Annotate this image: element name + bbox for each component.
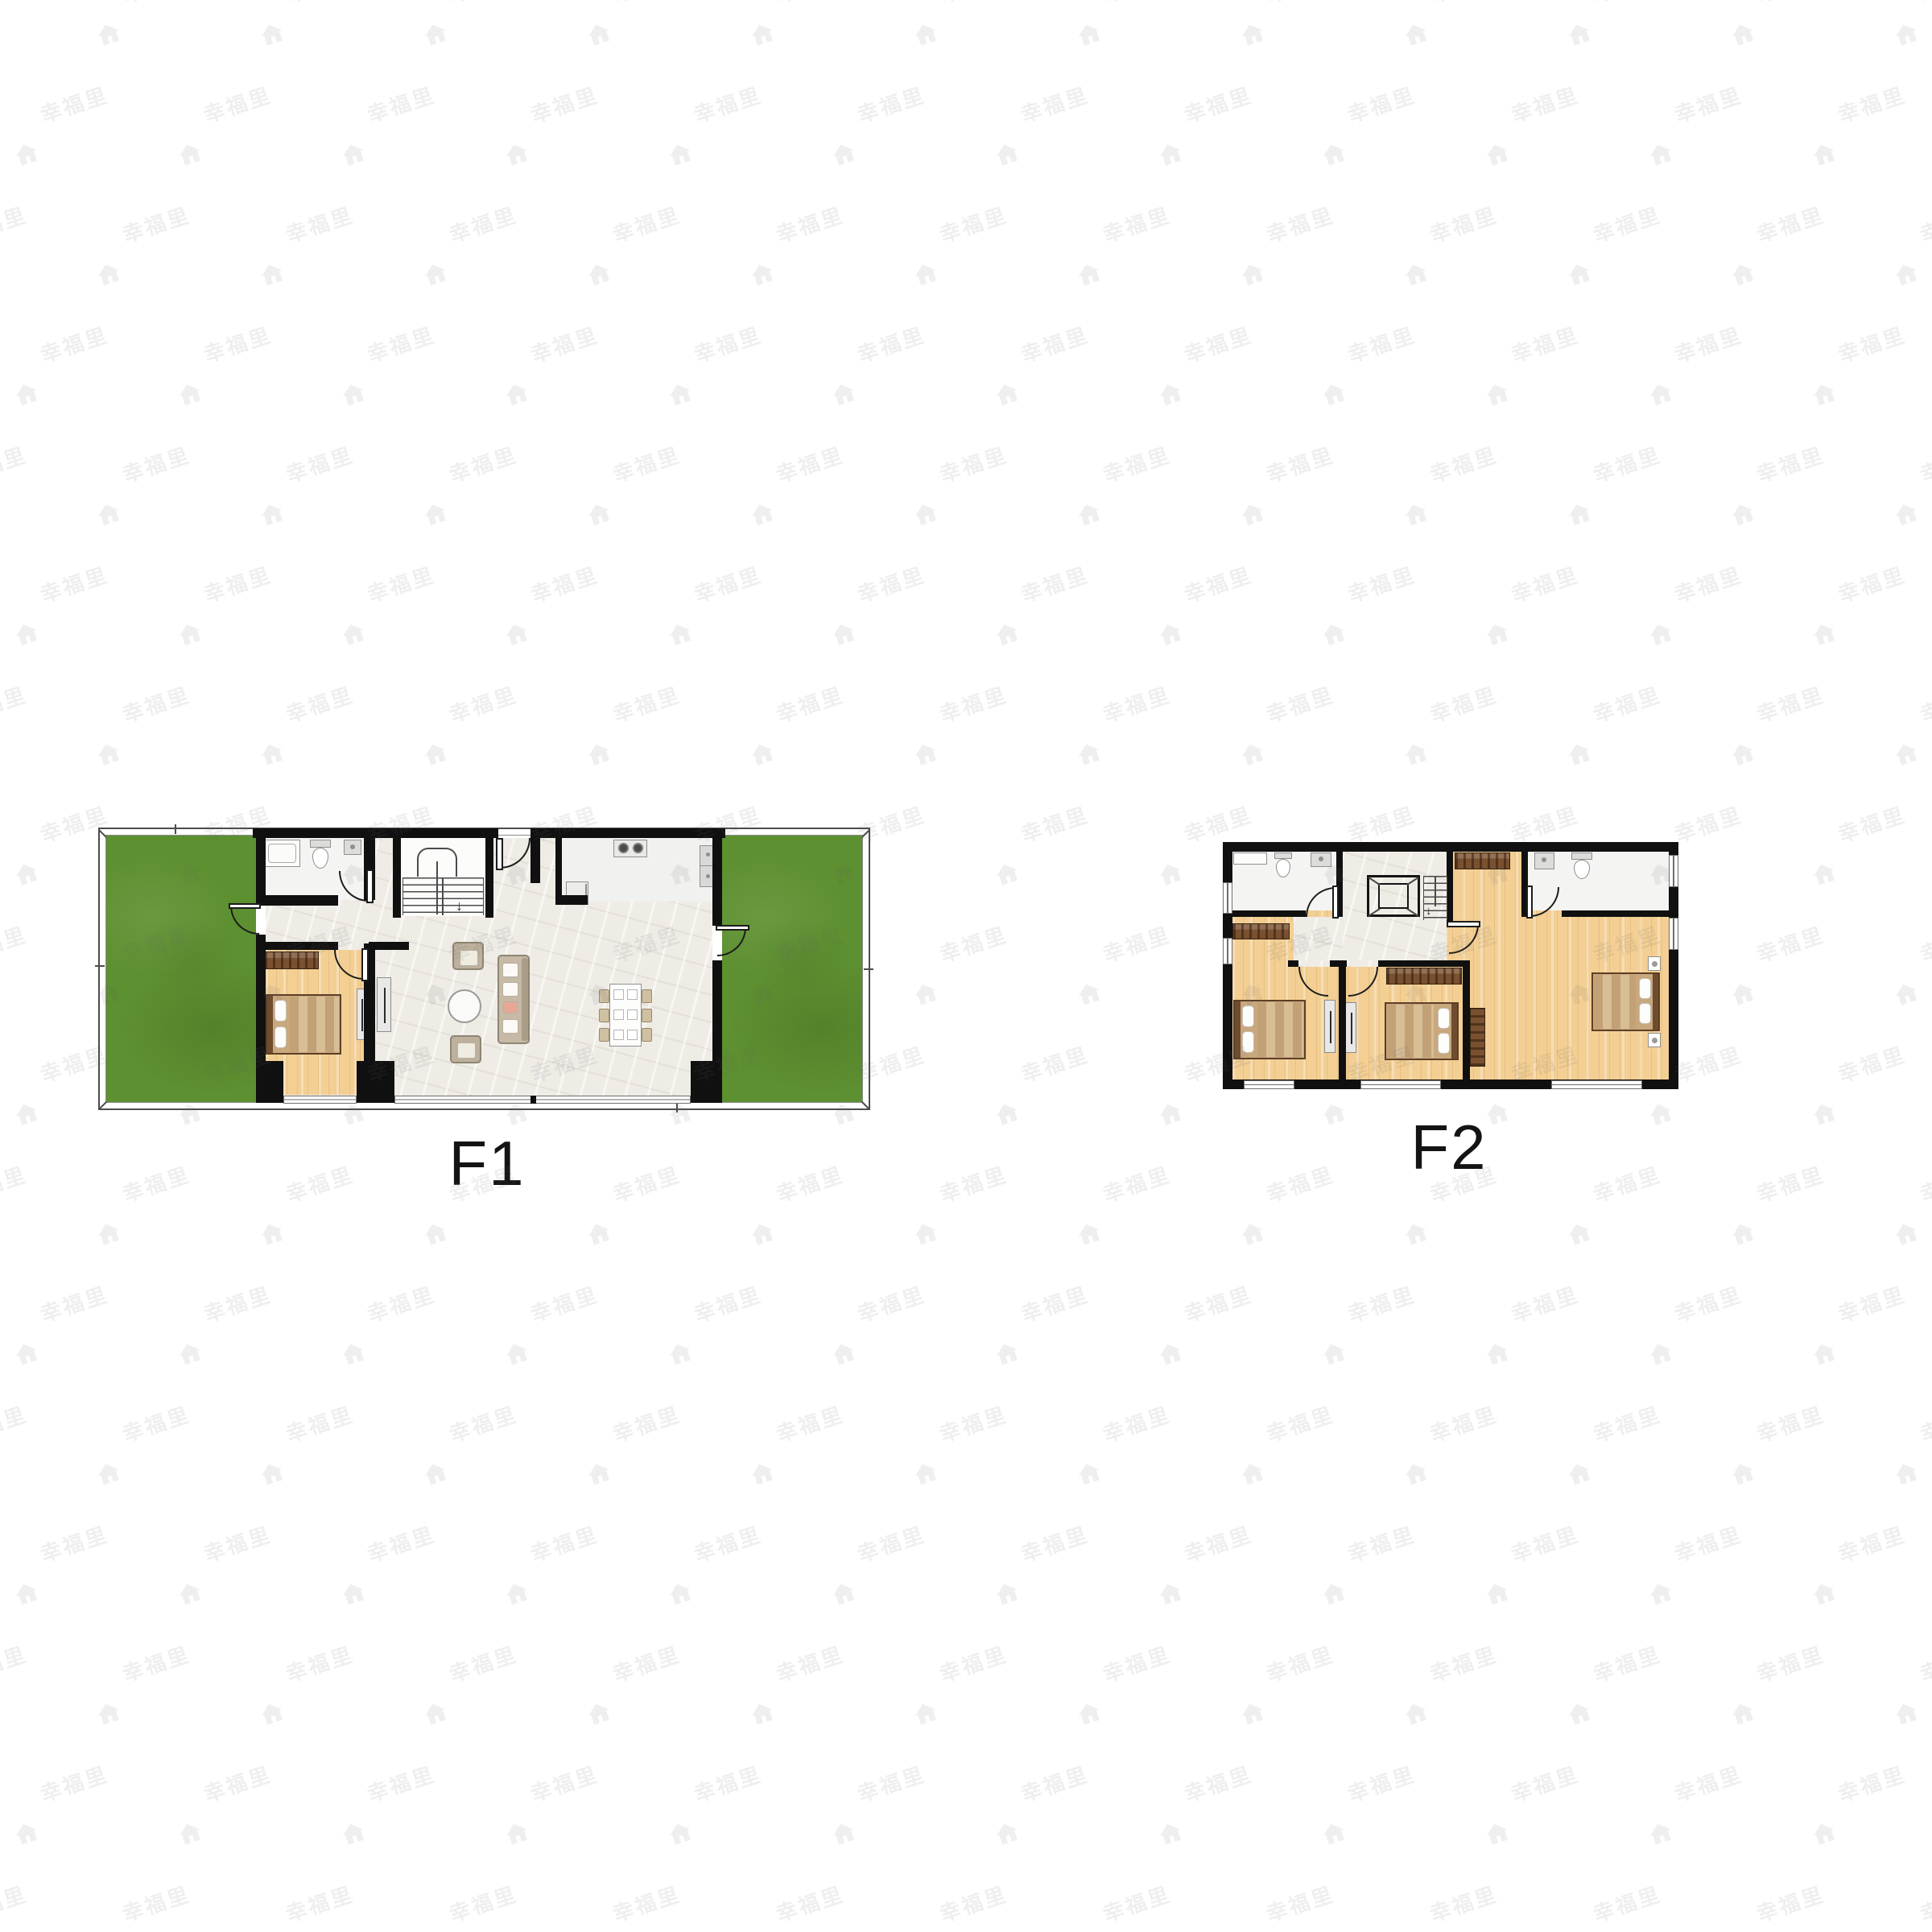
watermark-tile: 幸福里 [81,1394,221,1508]
pillow [1639,978,1651,999]
house-icon [828,378,860,411]
watermark-text: 幸福里 [1099,439,1174,489]
house-icon [1563,1218,1596,1250]
watermark-text: 幸福里 [772,199,848,249]
plate [613,989,624,1000]
watermark-text: 幸福里 [1099,1398,1174,1448]
watermark-tile: 幸福里 [0,315,139,428]
pillow [275,1026,287,1048]
house-icon [746,498,778,530]
watermark-text: 幸福里 [1752,1398,1828,1448]
tv-stand [1324,1000,1335,1053]
house-icon [256,498,288,530]
watermark-text: 幸福里 [1426,199,1501,249]
watermark-text: 幸福里 [772,1398,848,1448]
watermark-tile: 幸福里 [1470,555,1610,668]
watermark-tile: 幸福里 [163,1754,303,1868]
plate [627,1009,638,1020]
watermark-text: 幸福里 [1180,319,1256,369]
house-icon [910,258,942,291]
wall [1447,852,1453,924]
house-icon [1727,1458,1759,1490]
house-icon [1808,138,1840,171]
watermark-tile: 幸福里 [735,1154,875,1268]
tv-screen [1351,1013,1352,1044]
house-icon [1727,498,1759,530]
watermark-tile: 幸福里 [1797,1514,1932,1628]
house-icon [1318,618,1350,650]
watermark-text: 幸福里 [1262,1158,1338,1208]
watermark-tile: 幸福里 [1879,1394,1932,1508]
watermark-text: 幸福里 [1262,1638,1338,1688]
watermark-tile: 幸福里 [572,1874,712,1932]
sofa-pillow [502,982,518,997]
watermark-text: 幸福里 [526,1278,602,1328]
sofa-pillow [502,1019,518,1034]
house-icon [1154,1098,1187,1130]
watermark-text: 幸福里 [1180,799,1256,848]
house-icon [828,1338,860,1370]
house-icon [174,378,206,411]
watermark-tile: 幸福里 [1797,315,1932,428]
watermark-tile: 幸福里 [898,195,1038,308]
house-icon [1563,19,1596,51]
house-icon [1645,1818,1677,1850]
watermark-text: 幸福里 [1262,679,1338,729]
watermark-tile: 幸福里 [1389,1394,1529,1508]
door-gap [1298,960,1330,967]
pillow [275,1000,287,1022]
watermark-tile: 幸福里 [1797,1754,1932,1868]
watermark-tile: 幸福里 [163,1274,303,1388]
sink-drain [1319,857,1323,861]
house-icon [1236,258,1269,291]
watermark-text: 幸福里 [445,1398,521,1448]
house-icon [1727,258,1759,291]
watermark-tile: 幸福里 [326,1514,466,1628]
house-icon [1727,1698,1759,1730]
watermark-text: 幸福里 [1507,1758,1583,1808]
watermark-text: 幸福里 [200,1278,275,1328]
watermark-tile: 幸福里 [1225,195,1365,308]
watermark-text: 幸福里 [282,439,357,489]
garden-left [106,836,256,1102]
watermark-text: 幸福里 [118,1158,194,1208]
wall [1562,910,1669,917]
watermark-tile: 幸福里 [1225,1874,1365,1932]
watermark-tile: 幸福里 [1062,195,1202,308]
house-icon [1563,498,1596,530]
watermark-text: 幸福里 [1017,319,1092,369]
watermark-text: 幸福里 [118,1878,194,1928]
watermark-tile: 幸福里 [0,1634,58,1748]
bed [1385,1002,1459,1060]
house-icon [1645,1338,1677,1370]
watermark-tile: 幸福里 [1715,0,1856,69]
watermark-text: 幸福里 [1099,919,1174,968]
watermark-text: 幸福里 [1752,1638,1828,1688]
house-icon [1318,1098,1350,1130]
watermark-tile: 幸福里 [1715,195,1856,308]
house-icon [256,738,288,770]
watermark-tile: 幸福里 [898,675,1038,788]
watermark-tile: 幸福里 [980,795,1120,908]
house-icon [910,978,942,1010]
house-icon [1481,1338,1513,1370]
house-icon [256,1218,288,1250]
watermark-tile: 幸福里 [1143,555,1283,668]
watermark-tile: 幸福里 [1062,914,1202,1028]
fence-tick [95,965,105,967]
watermark-tile: 幸福里 [898,1394,1038,1508]
watermark-tile: 幸福里 [0,1514,139,1628]
watermark-tile: 幸福里 [816,315,956,428]
house-icon [664,1818,696,1850]
watermark-tile: 幸福里 [245,435,385,548]
dining-chair [599,1009,609,1022]
fence-tick [175,824,176,834]
watermark-tile: 幸福里 [898,914,1038,1028]
nightstand-lamp [1652,1038,1657,1043]
plate [613,1009,624,1020]
house-icon [1481,1818,1513,1850]
house-icon [174,138,206,171]
watermark-tile: 幸福里 [1552,1394,1692,1508]
blanket [1257,1002,1303,1057]
house-icon [1400,498,1432,530]
watermark-tile: 幸福里 [816,1754,956,1868]
watermark-tile: 幸福里 [980,315,1120,428]
watermark-tile: 幸福里 [1143,75,1283,188]
house-icon [337,618,369,650]
watermark-tile: 幸福里 [1552,675,1692,788]
wardrobe [264,952,319,969]
watermark-text: 幸福里 [1752,439,1828,489]
watermark-text: 幸福里 [1834,79,1909,129]
watermark-tile: 幸福里 [1470,1514,1610,1628]
watermark-tile: 幸福里 [489,315,630,428]
watermark-text: 幸福里 [1344,559,1419,609]
watermark-text: 幸福里 [1507,559,1583,609]
house-icon [256,1698,288,1730]
watermark-text: 幸福里 [1752,1878,1828,1928]
watermark-text: 幸福里 [1916,439,1932,489]
watermark-text: 幸福里 [853,559,929,609]
watermark-tile: 幸福里 [1552,0,1692,69]
watermark-tile: 幸福里 [1307,1514,1447,1628]
watermark-text: 幸福里 [1507,79,1583,129]
window [1551,1080,1642,1089]
house-icon [93,1698,125,1730]
wardrobe [1455,852,1510,869]
watermark-text: 幸福里 [1916,1638,1932,1688]
house-icon [1890,1458,1922,1490]
watermark-tile: 幸福里 [1389,195,1529,308]
house-icon [991,1338,1023,1370]
house-icon [1481,138,1513,171]
nightstand [1648,1033,1661,1047]
window [1244,1080,1294,1089]
house-icon [1073,258,1105,291]
house-icon [1563,258,1596,291]
house-icon [174,1578,206,1610]
watermark-tile: 幸福里 [1715,1634,1856,1748]
house-icon [419,738,452,770]
watermark-text: 幸福里 [0,919,31,968]
watermark-text: 幸福里 [609,0,684,9]
wall [555,838,562,895]
watermark-tile: 幸福里 [735,675,875,788]
house-icon [910,498,942,530]
watermark-tile: 幸福里 [1797,75,1932,188]
house-icon [1154,858,1187,890]
watermark-text: 幸福里 [363,319,439,369]
house-icon [1236,498,1269,530]
watermark-tile: 幸福里 [1715,1874,1856,1932]
house-icon [1073,1218,1105,1250]
watermark-text: 幸福里 [118,679,194,729]
watermark-tile: 幸福里 [1797,555,1932,668]
house-icon [1154,618,1187,650]
watermark-tile: 幸福里 [816,555,956,668]
watermark-tile: 幸福里 [816,1274,956,1388]
house-icon [1890,258,1922,291]
watermark-text: 幸福里 [1589,1878,1665,1928]
watermark-tile: 幸福里 [572,1394,712,1508]
watermark-tile: 幸福里 [1062,0,1202,69]
wall [555,895,588,905]
door-leaf [496,838,503,870]
watermark-text: 幸福里 [1180,1518,1256,1568]
door-leaf [1526,885,1533,919]
watermark-tile: 幸福里 [980,1034,1120,1148]
house-icon [1318,378,1350,411]
watermark-tile: 幸福里 [1225,675,1365,788]
house-icon [337,378,369,411]
armchair [450,1035,481,1063]
watermark-tile: 幸福里 [735,435,875,548]
watermark-tile: 幸福里 [163,1514,303,1628]
tv-stand [1345,1002,1356,1053]
house-icon [174,618,206,650]
house-icon [1400,1218,1432,1250]
watermark-text: 幸福里 [118,1638,194,1688]
watermark-tile: 幸福里 [1225,1154,1365,1268]
house-icon [991,378,1023,411]
watermark-tile: 幸福里 [653,555,793,668]
house-icon [1808,1338,1840,1370]
house-icon [1154,1818,1187,1850]
watermark-text: 幸福里 [1589,1398,1665,1448]
house-icon [501,618,533,650]
watermark-text: 幸福里 [853,1518,929,1568]
door-gap [1347,960,1378,967]
watermark-tile: 幸福里 [898,0,1038,69]
watermark-text: 幸福里 [200,559,275,609]
watermark-text: 幸福里 [1180,79,1256,129]
watermark-text: 幸福里 [1344,799,1419,848]
watermark-text: 幸福里 [690,319,766,369]
watermark-tile: 幸福里 [326,555,466,668]
watermark-text: 幸福里 [526,559,602,609]
house-icon [1073,738,1105,770]
tv-screen [1330,1011,1331,1043]
watermark-text: 幸福里 [36,1518,112,1568]
watermark-text: 幸福里 [0,199,31,249]
watermark-tile: 幸福里 [980,1514,1120,1628]
watermark-tile: 幸福里 [1470,75,1610,188]
watermark-text: 幸福里 [1262,439,1338,489]
dining-chair [642,1009,652,1022]
watermark-tile: 幸福里 [572,435,712,548]
watermark-text: 幸福里 [1916,919,1932,968]
watermark-tile: 幸福里 [0,1154,58,1268]
watermark-text: 幸福里 [1017,799,1092,848]
house-icon [1481,618,1513,650]
house-icon [501,1338,533,1370]
door-leaf [366,869,374,903]
watermark-tile: 幸福里 [245,1394,385,1508]
watermark-text: 幸福里 [1426,1398,1501,1448]
watermark-tile: 幸福里 [653,1514,793,1628]
watermark-tile: 幸福里 [81,195,221,308]
watermark-text: 幸福里 [1834,319,1909,369]
house-icon [746,1458,778,1490]
toilet-tank [310,840,331,848]
page: ↓ [0,0,1932,1932]
watermark-text: 幸福里 [1916,0,1932,9]
house-icon [583,19,615,51]
house-icon [583,738,615,770]
house-icon [1890,1698,1922,1730]
house-icon [746,1218,778,1250]
house-icon [1808,1818,1840,1850]
watermark-text: 幸福里 [445,1878,521,1928]
watermark-text: 幸福里 [0,1878,31,1928]
house-icon [93,498,125,530]
watermark-text: 幸福里 [772,1878,848,1928]
watermark-tile: 幸福里 [1715,914,1856,1028]
house-icon [10,1098,43,1130]
house-icon [583,1218,615,1250]
house-icon [828,138,860,171]
house-icon [1890,498,1922,530]
watermark-tile: 幸福里 [1470,315,1610,428]
watermark-text: 幸福里 [935,919,1011,968]
watermark-text: 幸福里 [1916,1158,1932,1208]
house-icon [10,1578,43,1610]
watermark-text: 幸福里 [853,319,929,369]
watermark-text: 幸福里 [1426,1638,1501,1688]
blanket [1387,1005,1434,1058]
house-icon [419,19,452,51]
watermark-text: 幸福里 [609,1638,684,1688]
window [283,1096,357,1104]
house-icon [583,258,615,291]
window [394,1096,691,1104]
sofa-pillow [503,1001,518,1013]
watermark-tile: 幸福里 [1633,555,1773,668]
watermark-tile: 幸福里 [0,1874,58,1932]
watermark-text: 幸福里 [0,439,31,489]
watermark-text: 幸福里 [1099,199,1174,249]
watermark-tile: 幸福里 [489,1754,630,1868]
watermark-tile: 幸福里 [816,75,956,188]
door-leaf [1332,885,1339,919]
house-icon [991,138,1023,171]
bed-headboard [267,996,273,1053]
watermark-tile: 幸福里 [0,1754,139,1868]
house-icon [501,1578,533,1610]
house-icon [664,378,696,411]
watermark-text: 幸福里 [1017,1278,1092,1328]
house-icon [1400,738,1432,770]
watermark-tile: 幸福里 [1715,1154,1856,1268]
watermark-text: 幸福里 [200,1758,275,1808]
watermark-text: 幸福里 [445,679,521,729]
watermark-tile: 幸福里 [1470,1274,1610,1388]
house-icon [419,1458,452,1490]
watermark-tile: 幸福里 [1879,195,1932,308]
watermark-tile: 幸福里 [1470,1754,1610,1868]
watermark-tile: 幸福里 [898,1634,1038,1748]
watermark-tile: 幸福里 [1307,1754,1447,1868]
watermark-tile: 幸福里 [1879,1154,1932,1268]
watermark-tile: 幸福里 [245,1634,385,1748]
floor-label-f1: F1 [431,1127,543,1200]
wall [1223,842,1232,1089]
house-icon [828,1578,860,1610]
watermark-text: 幸福里 [1752,919,1828,968]
watermark-tile: 幸福里 [0,435,58,548]
fence-tick [864,968,873,970]
watermark-text: 幸福里 [1916,679,1932,729]
house-icon [256,19,288,51]
house-icon [1645,138,1677,171]
pillow [1438,1033,1450,1054]
watermark-text: 幸福里 [200,79,275,129]
watermark-text: 幸福里 [609,1398,684,1448]
house-icon [664,618,696,650]
watermark-tile: 幸福里 [1389,675,1529,788]
nightstand [1648,956,1661,971]
house-icon [10,858,43,890]
house-icon [1236,1218,1269,1250]
watermark-text: 幸福里 [282,1878,357,1928]
watermark-tile: 幸福里 [898,1154,1038,1268]
garden-right [722,836,862,1102]
watermark-tile: 幸福里 [1552,1874,1692,1932]
watermark-text: 幸福里 [526,79,602,129]
house-icon [991,1578,1023,1610]
watermark-text: 幸福里 [282,1158,357,1208]
wall [1339,967,1346,1080]
wall [712,960,722,1061]
watermark-tile: 幸福里 [408,1634,548,1748]
watermark-text: 幸福里 [0,0,31,9]
watermark-text: 幸福里 [526,1518,602,1568]
watermark-tile: 幸福里 [245,195,385,308]
watermark-text: 幸福里 [1589,1638,1665,1688]
watermark-tile: 幸福里 [0,914,58,1028]
watermark-tile: 幸福里 [1143,1754,1283,1868]
watermark-text: 幸福里 [445,1638,521,1688]
house-icon [1563,1458,1596,1490]
watermark-text: 幸福里 [1834,559,1909,609]
watermark-tile: 幸福里 [980,555,1120,668]
watermark-text: 幸福里 [1344,1518,1419,1568]
kitchen-sink-drain [706,874,710,878]
